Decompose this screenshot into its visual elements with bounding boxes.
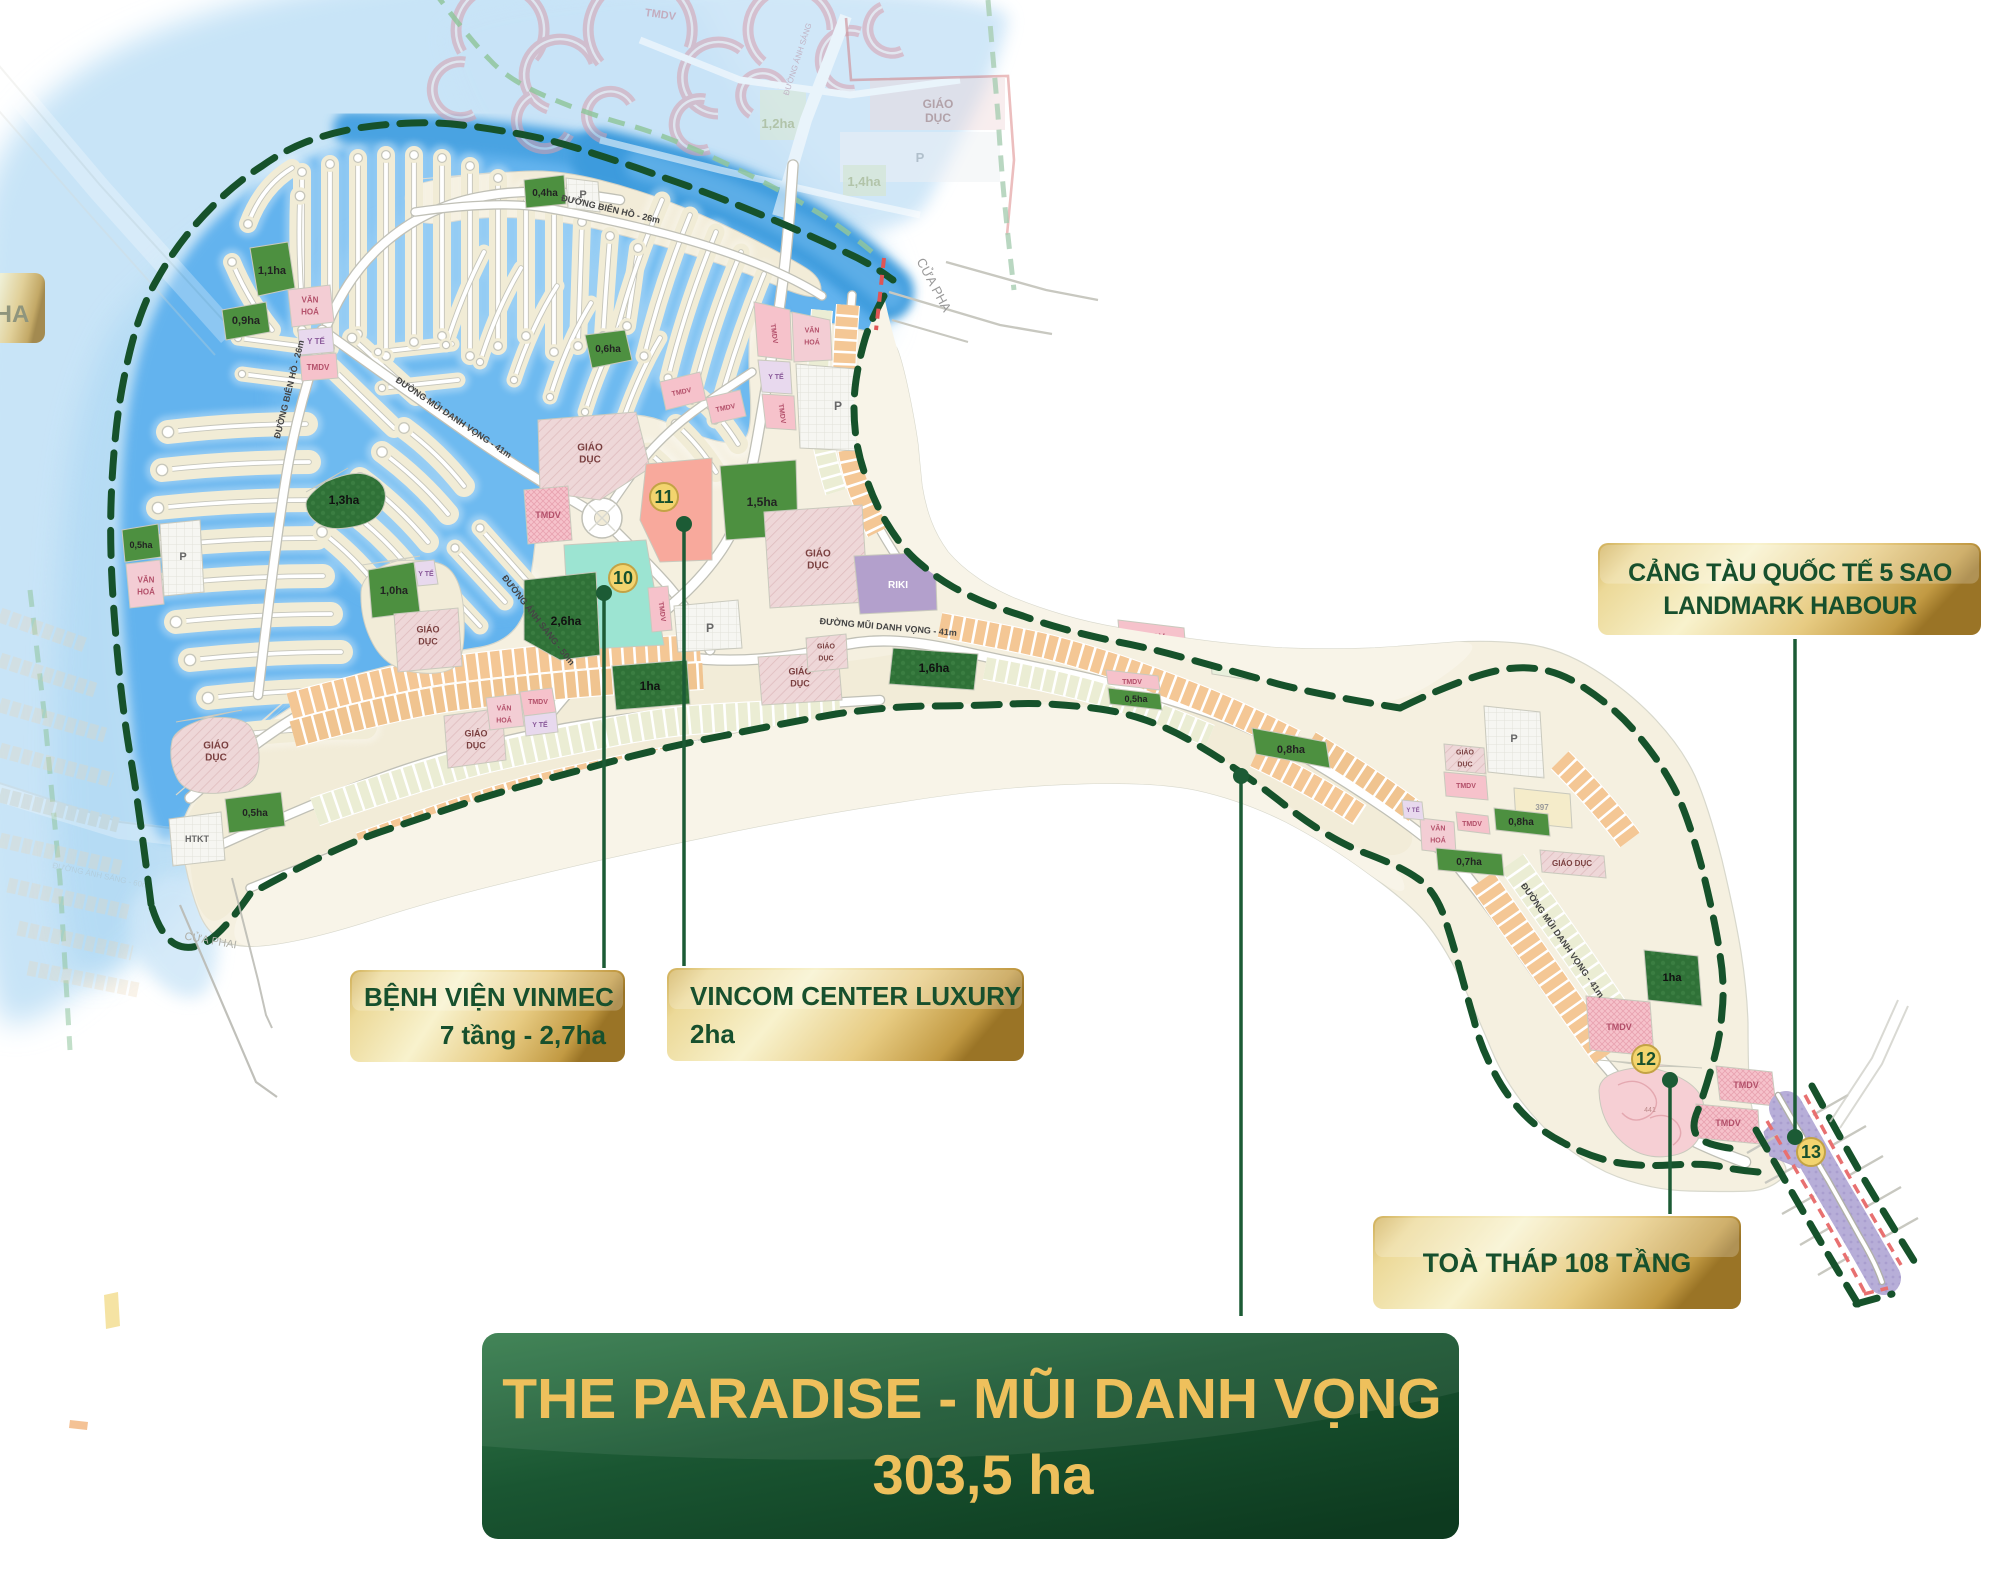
svg-text:LANDMARK HABOUR: LANDMARK HABOUR: [1663, 592, 1917, 620]
svg-text:2ha: 2ha: [690, 1019, 735, 1049]
svg-text:11: 11: [654, 487, 673, 507]
svg-text:0,5ha: 0,5ha: [129, 540, 153, 550]
svg-text:Y TẾ: Y TẾ: [1406, 807, 1419, 814]
svg-text:TMDV: TMDV: [1733, 1080, 1759, 1090]
svg-text:BỆNH VIỆN VINMEC: BỆNH VIỆN VINMEC: [364, 982, 614, 1012]
svg-text:HOÁ: HOÁ: [1430, 836, 1446, 845]
svg-text:1,0ha: 1,0ha: [380, 585, 409, 597]
svg-text:2,6ha: 2,6ha: [551, 614, 582, 628]
svg-text:1,6ha: 1,6ha: [919, 661, 950, 675]
svg-text:TMDV: TMDV: [1462, 821, 1482, 828]
svg-text:0,9ha: 0,9ha: [232, 315, 261, 327]
svg-text:HA: HA: [0, 301, 29, 328]
svg-text:P: P: [916, 150, 925, 165]
svg-text:0,7ha: 0,7ha: [1456, 857, 1482, 868]
svg-text:DỤC: DỤC: [418, 637, 438, 647]
svg-text:TMDV: TMDV: [1715, 1118, 1741, 1128]
svg-text:DỤC: DỤC: [807, 561, 829, 572]
svg-text:GIÁO DỤC: GIÁO DỤC: [1552, 859, 1592, 868]
svg-text:HOÁ: HOÁ: [301, 308, 319, 317]
svg-text:DỤC: DỤC: [925, 111, 951, 125]
svg-text:0,8ha: 0,8ha: [1508, 817, 1534, 828]
svg-text:7 tầng - 2,7ha: 7 tầng - 2,7ha: [440, 1020, 607, 1050]
svg-text:THE PARADISE - MŨI DANH VỌNG: THE PARADISE - MŨI DANH VỌNG: [502, 1367, 1441, 1431]
svg-text:1,5ha: 1,5ha: [747, 495, 778, 509]
svg-text:TMDV: TMDV: [1456, 783, 1476, 790]
svg-text:0,5ha: 0,5ha: [242, 808, 268, 819]
svg-text:GIÁO: GIÁO: [203, 739, 229, 752]
svg-text:TMDV: TMDV: [1606, 1022, 1632, 1032]
svg-text:VĂN: VĂN: [138, 576, 155, 585]
svg-text:HTKT: HTKT: [185, 834, 209, 844]
svg-text:GIÁO: GIÁO: [416, 625, 439, 635]
svg-text:VĂN: VĂN: [805, 326, 820, 335]
svg-text:VĂN: VĂN: [1431, 824, 1446, 833]
svg-text:303,5 ha: 303,5 ha: [872, 1443, 1094, 1506]
svg-text:P: P: [706, 621, 714, 635]
svg-text:1ha: 1ha: [640, 679, 661, 693]
svg-text:P: P: [1510, 733, 1517, 745]
svg-text:0,4ha: 0,4ha: [532, 188, 558, 199]
svg-text:0,8ha: 0,8ha: [1277, 744, 1306, 756]
svg-text:DỤC: DỤC: [1457, 762, 1472, 769]
svg-text:TOÀ THÁP 108 TẦNG: TOÀ THÁP 108 TẦNG: [1423, 1248, 1692, 1278]
svg-text:1ha: 1ha: [1663, 972, 1683, 984]
svg-text:12: 12: [1636, 1049, 1656, 1069]
svg-text:GIÁO: GIÁO: [805, 547, 831, 560]
svg-text:GIÁO: GIÁO: [577, 441, 603, 454]
svg-text:DỤC: DỤC: [818, 656, 833, 663]
svg-text:GIÁO: GIÁO: [923, 96, 954, 111]
svg-text:10: 10: [613, 568, 633, 588]
svg-text:0,6ha: 0,6ha: [595, 344, 621, 355]
svg-text:VĂN: VĂN: [302, 296, 319, 305]
svg-text:397: 397: [1535, 803, 1549, 812]
svg-text:P: P: [179, 551, 186, 563]
svg-text:DỤC: DỤC: [579, 455, 601, 466]
svg-text:HOÁ: HOÁ: [496, 716, 512, 725]
svg-text:TMDV: TMDV: [307, 363, 330, 372]
svg-text:441: 441: [1644, 1107, 1656, 1114]
svg-text:GIÁO: GIÁO: [464, 729, 487, 739]
svg-text:DỤC: DỤC: [790, 679, 810, 689]
svg-text:GIÁO: GIÁO: [1456, 748, 1474, 757]
svg-text:DỤC: DỤC: [466, 741, 486, 751]
svg-text:VINCOM CENTER LUXURY: VINCOM CENTER LUXURY: [690, 981, 1021, 1011]
svg-text:VĂN: VĂN: [497, 704, 512, 713]
svg-text:TMDV: TMDV: [1122, 679, 1142, 686]
svg-text:0,5ha: 0,5ha: [1124, 694, 1148, 704]
svg-text:DỤC: DỤC: [205, 753, 227, 764]
svg-text:CẢNG TÀU QUỐC TẾ 5 SAO: CẢNG TÀU QUỐC TẾ 5 SAO: [1628, 557, 1952, 587]
svg-text:TMDV: TMDV: [535, 510, 561, 520]
svg-text:RIKI: RIKI: [888, 580, 908, 591]
svg-text:TMDV: TMDV: [528, 699, 548, 706]
svg-text:1,3ha: 1,3ha: [329, 493, 360, 507]
svg-text:GIÁO: GIÁO: [817, 642, 835, 651]
svg-text:1,1ha: 1,1ha: [258, 265, 287, 277]
svg-text:1,2ha: 1,2ha: [761, 116, 795, 131]
svg-text:HOÁ: HOÁ: [137, 588, 155, 597]
svg-text:1,4ha: 1,4ha: [847, 174, 881, 189]
svg-text:Y TẾ: Y TẾ: [307, 336, 325, 346]
svg-text:HOÁ: HOÁ: [804, 338, 820, 347]
svg-text:P: P: [834, 399, 842, 413]
svg-text:13: 13: [1801, 1142, 1821, 1162]
